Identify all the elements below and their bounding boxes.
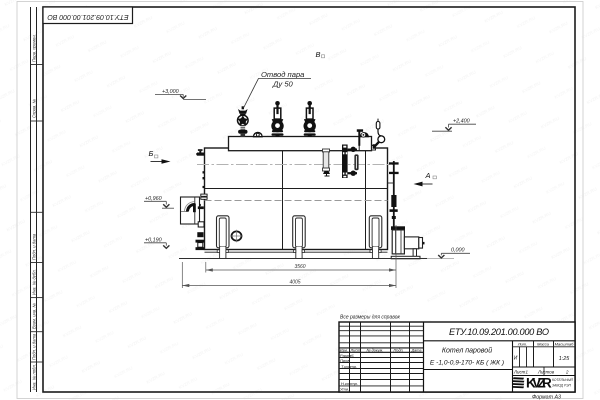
svg-text:ЗАВОД РЭП: ЗАВОД РЭП bbox=[552, 384, 572, 388]
svg-text:1:25: 1:25 bbox=[559, 356, 570, 362]
svg-text:Подп. и дата: Подп. и дата bbox=[32, 233, 37, 260]
svg-text:№ докум.: № докум. bbox=[367, 349, 384, 353]
svg-text:В: В bbox=[316, 50, 321, 59]
svg-text:Взам. инв. №: Взам. инв. № bbox=[32, 303, 37, 329]
svg-text:Инв. № дубл.: Инв. № дубл. bbox=[32, 269, 37, 295]
svg-text:Масса: Масса bbox=[537, 342, 550, 347]
svg-text:Е -1,0-0,9-170- КБ ( ЖК ): Е -1,0-0,9-170- КБ ( ЖК ) bbox=[430, 360, 504, 367]
svg-text:Подп. и дата: Подп. и дата bbox=[32, 333, 37, 360]
svg-text:KVZR: KVZR bbox=[526, 376, 552, 391]
svg-text:Листов: Листов bbox=[537, 370, 555, 375]
svg-text:Все размеры для справок: Все размеры для справок bbox=[340, 315, 401, 321]
svg-text:ЕТУ.10.09.201.00.000 ВО: ЕТУ.10.09.201.00.000 ВО bbox=[449, 327, 549, 337]
svg-text:И: И bbox=[514, 356, 518, 362]
svg-text:Лит.: Лит. bbox=[517, 342, 527, 347]
svg-text:Утв.: Утв. bbox=[340, 387, 349, 392]
svg-text:Ду 50: Ду 50 bbox=[272, 80, 294, 89]
svg-text:Дата: Дата bbox=[411, 349, 422, 353]
svg-text:0,000: 0,000 bbox=[451, 248, 465, 254]
svg-text:КОТЕЛЬНЫЙ: КОТЕЛЬНЫЙ bbox=[552, 378, 573, 382]
svg-text:Пров.: Пров. bbox=[340, 358, 351, 363]
svg-text:Отвод пара: Отвод пара bbox=[261, 70, 304, 79]
svg-text:+2,400: +2,400 bbox=[453, 118, 470, 124]
svg-text:Подп.: Подп. bbox=[394, 349, 404, 353]
svg-text:Формат А3: Формат А3 bbox=[532, 395, 561, 400]
svg-text:А: А bbox=[425, 171, 431, 180]
svg-text:Б: Б bbox=[149, 149, 154, 158]
svg-text:Перв. примен.: Перв. примен. bbox=[32, 34, 37, 62]
svg-text:2: 2 bbox=[565, 370, 569, 375]
svg-text:Справ. №: Справ. № bbox=[32, 99, 37, 118]
svg-text:Котел паровой: Котел паровой bbox=[442, 347, 492, 355]
svg-text:ЕТУ.10.09.201.00.000 ВО: ЕТУ.10.09.201.00.000 ВО bbox=[47, 13, 129, 20]
svg-text:Лист: Лист bbox=[513, 370, 526, 375]
svg-text:4005: 4005 bbox=[289, 280, 300, 286]
svg-text:3560: 3560 bbox=[294, 264, 305, 270]
svg-text:Инв. № подл.: Инв. № подл. bbox=[32, 364, 37, 390]
svg-text:Масштаб: Масштаб bbox=[555, 342, 574, 347]
